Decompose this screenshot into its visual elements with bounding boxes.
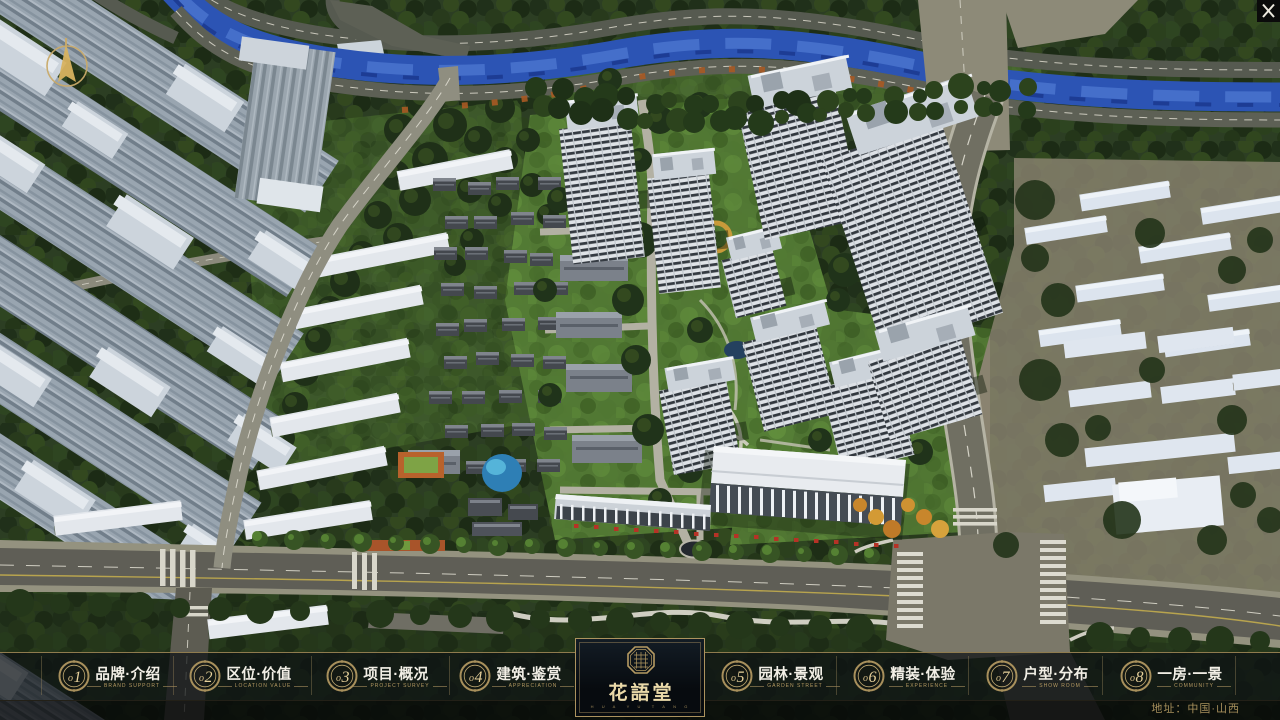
svg-text:1: 1 <box>74 669 82 686</box>
svg-text:o: o <box>199 673 204 684</box>
svg-text:o: o <box>996 673 1001 684</box>
svg-text:o: o <box>336 673 341 684</box>
svg-text:o: o <box>68 673 73 684</box>
svg-text:2: 2 <box>205 669 213 686</box>
svg-text:4: 4 <box>475 669 483 686</box>
svg-text:o: o <box>469 673 474 684</box>
svg-text:6: 6 <box>869 669 877 686</box>
svg-text:o: o <box>1130 673 1135 684</box>
svg-text:5: 5 <box>737 669 745 686</box>
svg-text:8: 8 <box>1136 669 1144 686</box>
svg-text:3: 3 <box>341 669 350 686</box>
svg-text:o: o <box>731 673 736 684</box>
svg-text:o: o <box>863 673 868 684</box>
